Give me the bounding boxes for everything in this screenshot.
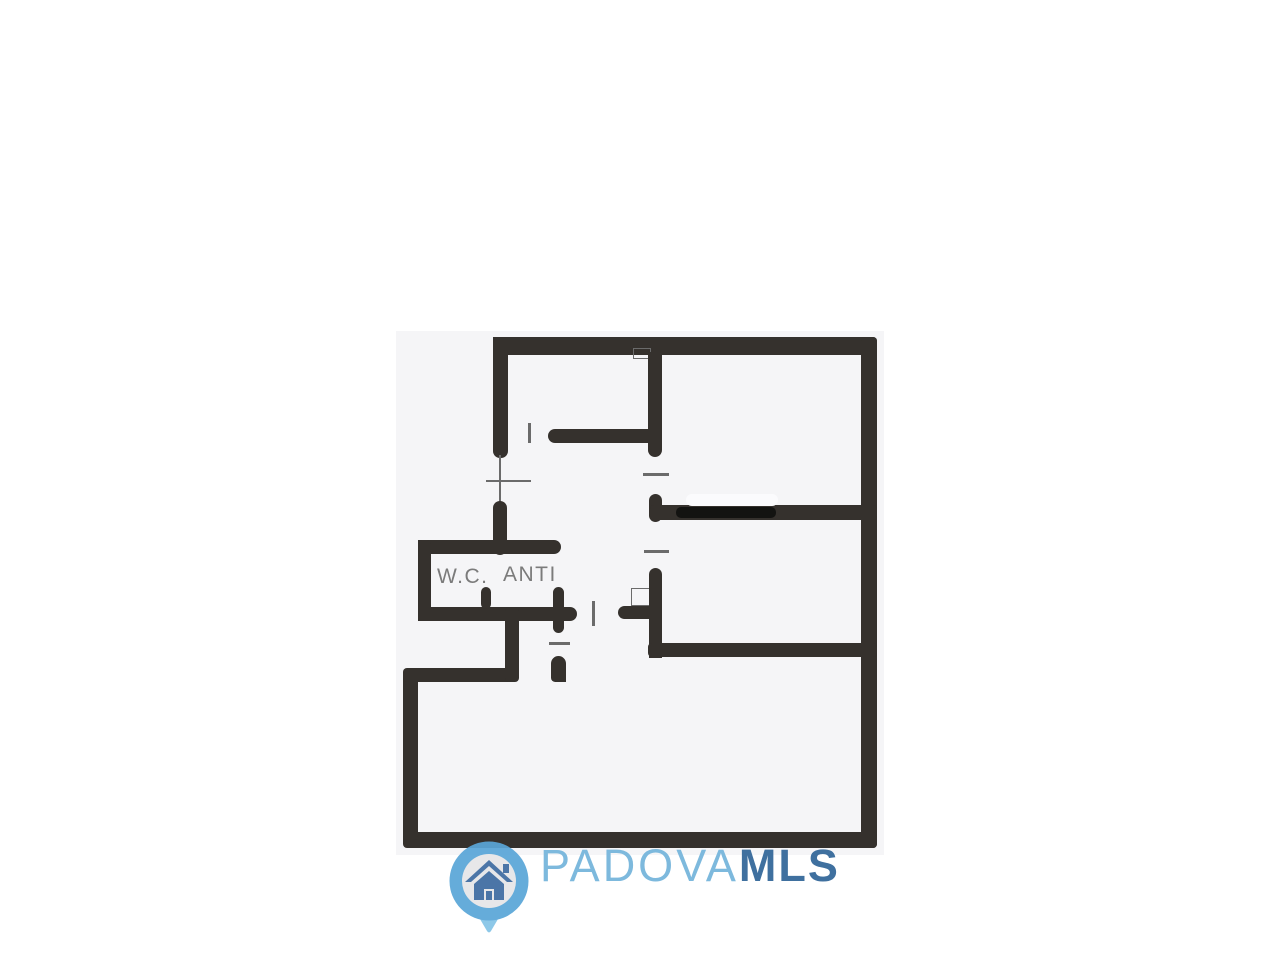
wall-segment-anti-stub xyxy=(618,606,651,619)
door-jamb-outline xyxy=(631,588,650,606)
location-pin-icon xyxy=(446,840,532,938)
window-line xyxy=(499,455,501,503)
room-label-anti: ANTI xyxy=(503,563,557,587)
padovamls-watermark: PADOVAMLS xyxy=(446,838,866,938)
window-sill-line xyxy=(486,480,531,482)
door-gap-line xyxy=(643,473,669,476)
wall-segment-hall-left xyxy=(505,607,519,682)
wall-segment-bottomroom-top xyxy=(403,668,513,682)
wall-segment-wc-top xyxy=(418,540,561,554)
wall-segment-upperleft xyxy=(493,337,508,458)
door-gap-line xyxy=(549,642,570,645)
wall-segment-right xyxy=(861,337,877,848)
wall-segment-right-room-divider-2 xyxy=(648,643,877,657)
wall-segment-bottomroom-left xyxy=(403,670,418,840)
wall-segment-divider-upper xyxy=(648,352,662,457)
door-jamb-line xyxy=(528,423,531,443)
wall-segment-top xyxy=(495,337,877,355)
brand-text-mls: MLS xyxy=(739,840,840,891)
door-gap-line xyxy=(644,550,669,553)
room-label-wc: W.C. xyxy=(437,565,489,589)
door-jamb-stub xyxy=(481,587,491,609)
wall-segment-hallway-top xyxy=(548,429,660,443)
redaction-scribble xyxy=(676,507,776,518)
door-jamb-stub xyxy=(553,587,564,633)
wall-segment-hall-stub xyxy=(551,656,566,682)
brand-text-padova: PADOVA xyxy=(540,840,739,891)
brand-text: PADOVAMLS xyxy=(540,844,840,888)
door-leaf-line xyxy=(592,601,595,626)
scanned-floorplan: W.C. ANTI PADOVAMLS xyxy=(0,0,1280,960)
correction-mark xyxy=(686,494,778,506)
